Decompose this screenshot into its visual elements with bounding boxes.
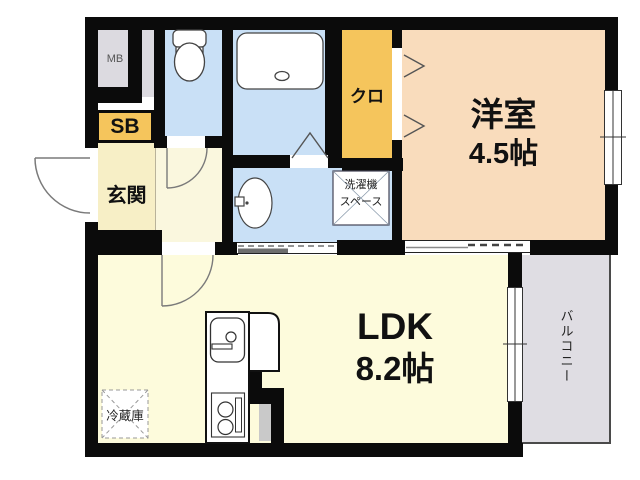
wall-left-lower xyxy=(85,222,98,457)
ldk-name: LDK xyxy=(330,308,460,346)
western-sliding-door xyxy=(405,240,530,253)
washer-space-label-line2: スペース xyxy=(333,194,389,211)
closet-label: クロ xyxy=(340,83,394,105)
wall-toilet-left xyxy=(154,17,165,148)
wall-bath-bottom-l xyxy=(222,155,290,168)
balcony-label: バルコニー xyxy=(556,298,576,394)
kitchen-wall-pocket xyxy=(259,404,271,441)
hallway xyxy=(155,143,222,242)
ldk-window xyxy=(507,287,523,402)
western-room-size: 4.5帖 xyxy=(402,133,605,169)
wall-western-left-bottom xyxy=(392,140,402,240)
entrance-door-swing xyxy=(35,158,90,213)
wall-toilet-bottom-r xyxy=(205,136,222,148)
toilet-door-opening xyxy=(167,136,205,148)
bathroom xyxy=(233,30,325,155)
wall-ldk-right-upper xyxy=(508,253,522,287)
wall-bottom xyxy=(85,443,523,457)
wall-right-upper xyxy=(605,17,618,90)
wall-western-left-top xyxy=(392,30,402,48)
ldk-door-opening xyxy=(162,242,213,255)
wall-bath-bottom-r xyxy=(328,155,342,168)
wall-seg-hall-wash xyxy=(215,242,238,255)
duct-shaft xyxy=(142,30,154,97)
western-room-window xyxy=(604,90,622,185)
genkan-label: 玄関 xyxy=(98,180,155,206)
wall-seg-wash-west xyxy=(337,240,405,255)
shoe-box-label: SB xyxy=(96,111,154,142)
ldk-size: 8.2帖 xyxy=(320,348,470,384)
toilet-room xyxy=(164,30,222,136)
wall-ldk-right-lower xyxy=(508,402,522,443)
floor-plan: MB SB 玄関 クロ 洋室 4.5帖 LDK 8.2帖 バルコニー 洗濯機 ス… xyxy=(0,0,640,480)
meter-box-label: MB xyxy=(98,50,132,68)
washroom-sliding-door xyxy=(237,242,337,254)
wall-seg-west-balcony xyxy=(530,240,618,255)
wall-hall-divider xyxy=(222,17,233,242)
wall-kitchen-end-3 xyxy=(271,402,284,443)
washer-space-label: 洗濯機 スペース xyxy=(333,177,389,219)
western-room-name: 洋室 xyxy=(402,92,605,132)
refrigerator-label: 冷蔵庫 xyxy=(102,405,148,423)
wall-toilet-bottom-l xyxy=(154,136,167,148)
bath-door-opening xyxy=(290,155,328,168)
wall-right-mid xyxy=(605,185,618,240)
wall-genkan-bottom xyxy=(85,230,162,255)
washer-space-label-line1: 洗濯機 xyxy=(333,177,389,194)
genkan-step-line xyxy=(155,143,156,230)
entrance-opening xyxy=(85,148,97,222)
